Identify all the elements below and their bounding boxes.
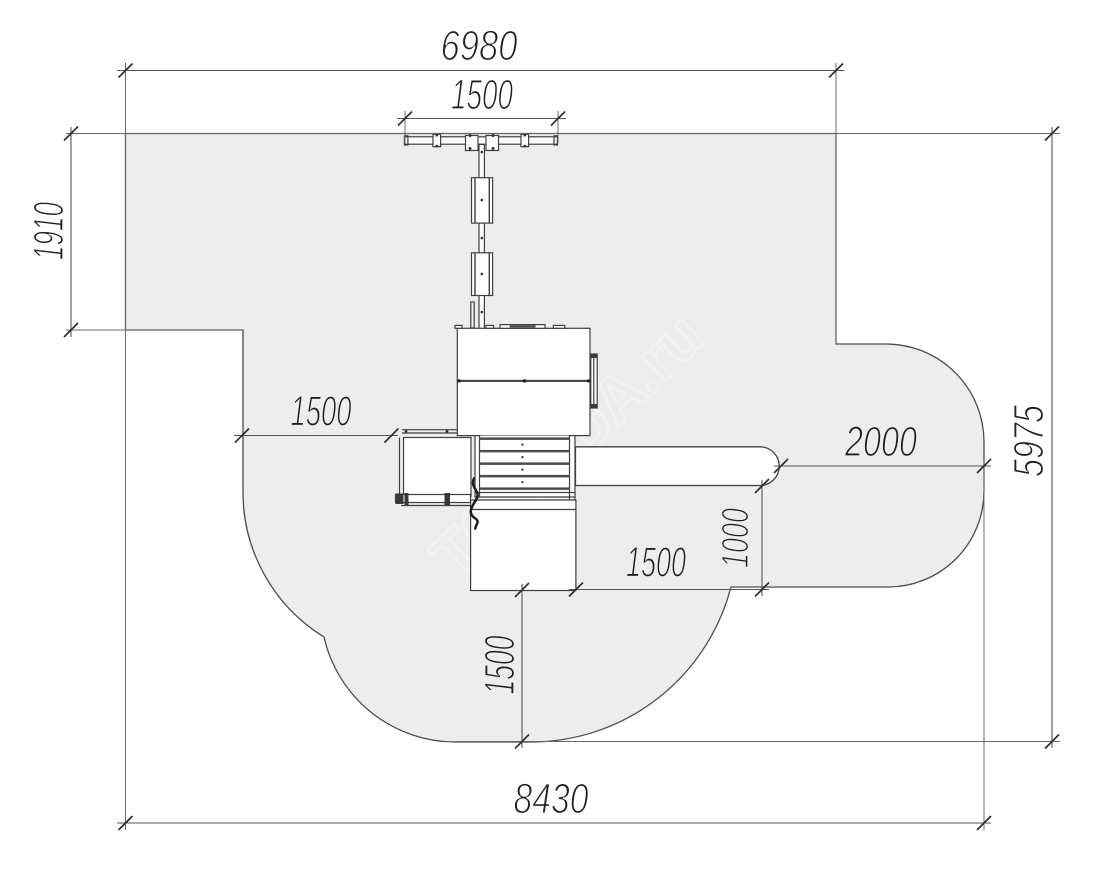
svg-text:6980: 6980: [441, 22, 518, 70]
svg-text:1000: 1000: [715, 508, 757, 568]
svg-text:1910: 1910: [25, 202, 73, 260]
svg-text:1500: 1500: [291, 388, 352, 436]
svg-text:5975: 5975: [1005, 404, 1053, 477]
svg-text:1500: 1500: [626, 539, 686, 587]
svg-text:1500: 1500: [476, 635, 524, 694]
svg-text:1500: 1500: [451, 71, 513, 119]
svg-text:2000: 2000: [844, 418, 917, 466]
svg-text:8430: 8430: [514, 775, 589, 823]
